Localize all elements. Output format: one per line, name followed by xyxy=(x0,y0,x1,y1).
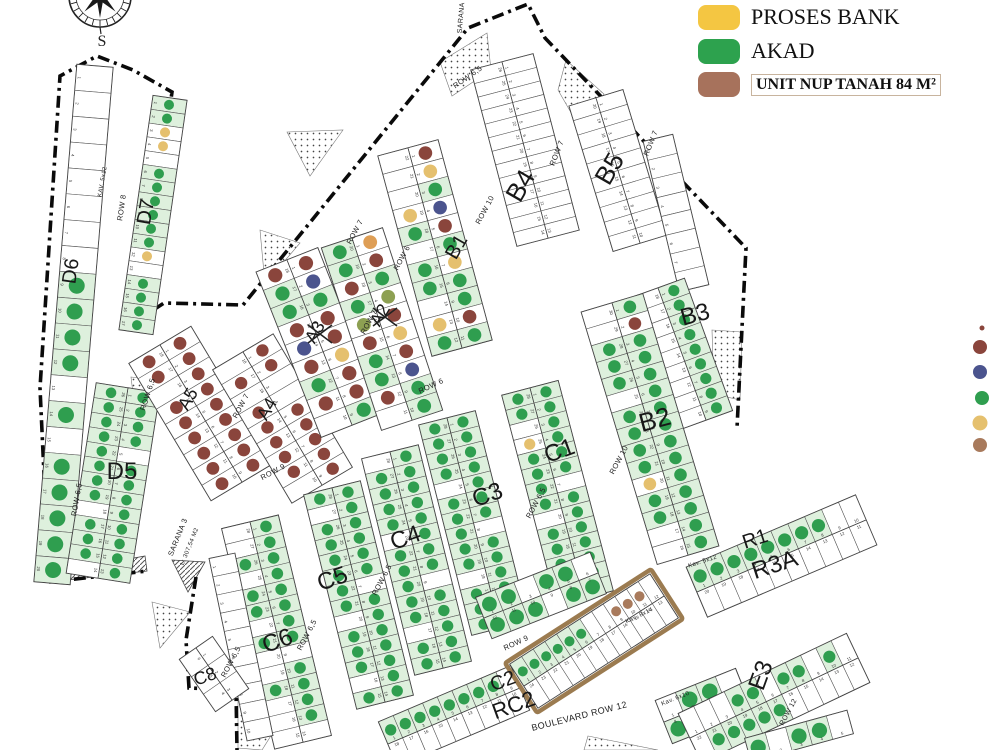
compass-south-label: S xyxy=(98,33,107,50)
compass-star xyxy=(78,0,122,18)
legend-item-proses-bank: PROSES BANK xyxy=(698,4,941,30)
akad-swatch xyxy=(698,39,740,64)
side-key-dot-B xyxy=(973,438,987,452)
stippled-area xyxy=(152,602,190,648)
street-label: ROW 10 xyxy=(474,194,497,226)
proses-bank-swatch xyxy=(698,5,740,30)
block-label-D5: D5 xyxy=(107,458,138,485)
site-plan-map: 1234567891011121314151617181920123456789… xyxy=(0,0,1000,750)
side-key-dot-M xyxy=(980,326,985,331)
compass-tick xyxy=(79,13,83,17)
compass-tick xyxy=(71,2,77,4)
legend: PROSES BANK AKAD UNIT NUP TANAH 84 M² xyxy=(698,4,941,97)
side-key-dot-G xyxy=(975,391,989,405)
side-key-dot-N xyxy=(973,365,987,379)
legend-item-akad: AKAD xyxy=(698,38,941,64)
compass-tick xyxy=(123,2,129,4)
unit-nup-swatch xyxy=(698,72,740,97)
compass-tick xyxy=(92,19,94,25)
compass-tick xyxy=(112,17,115,22)
legend-label-unit-nup: UNIT NUP TANAH 84 M² xyxy=(751,74,941,96)
compass-tick xyxy=(106,19,108,25)
street-label: SARANA xyxy=(457,2,467,34)
side-key-dot-M xyxy=(973,340,987,354)
street-label: BOULEVARD ROW 12 xyxy=(530,699,628,732)
compass-tick xyxy=(117,13,121,17)
side-key-dot-Y xyxy=(973,416,988,431)
block-label-D6: D6 xyxy=(58,257,83,285)
street-label: ROW 8 xyxy=(115,194,128,222)
compass-rose: S xyxy=(69,0,131,50)
legend-label-akad: AKAD xyxy=(751,38,815,64)
compass-tick xyxy=(74,8,79,11)
stippled-area xyxy=(584,736,658,750)
compass-tick xyxy=(121,8,126,11)
legend-label-proses-bank: PROSES BANK xyxy=(751,4,900,30)
hatched-area xyxy=(172,560,205,592)
compass-tick xyxy=(85,17,88,22)
site-plan-svg: 1234567891011121314151617181920123456789… xyxy=(0,0,1000,750)
stippled-area xyxy=(287,130,343,176)
block-label-D7: D7 xyxy=(133,197,159,226)
legend-item-unit-nup: UNIT NUP TANAH 84 M² xyxy=(698,72,941,97)
